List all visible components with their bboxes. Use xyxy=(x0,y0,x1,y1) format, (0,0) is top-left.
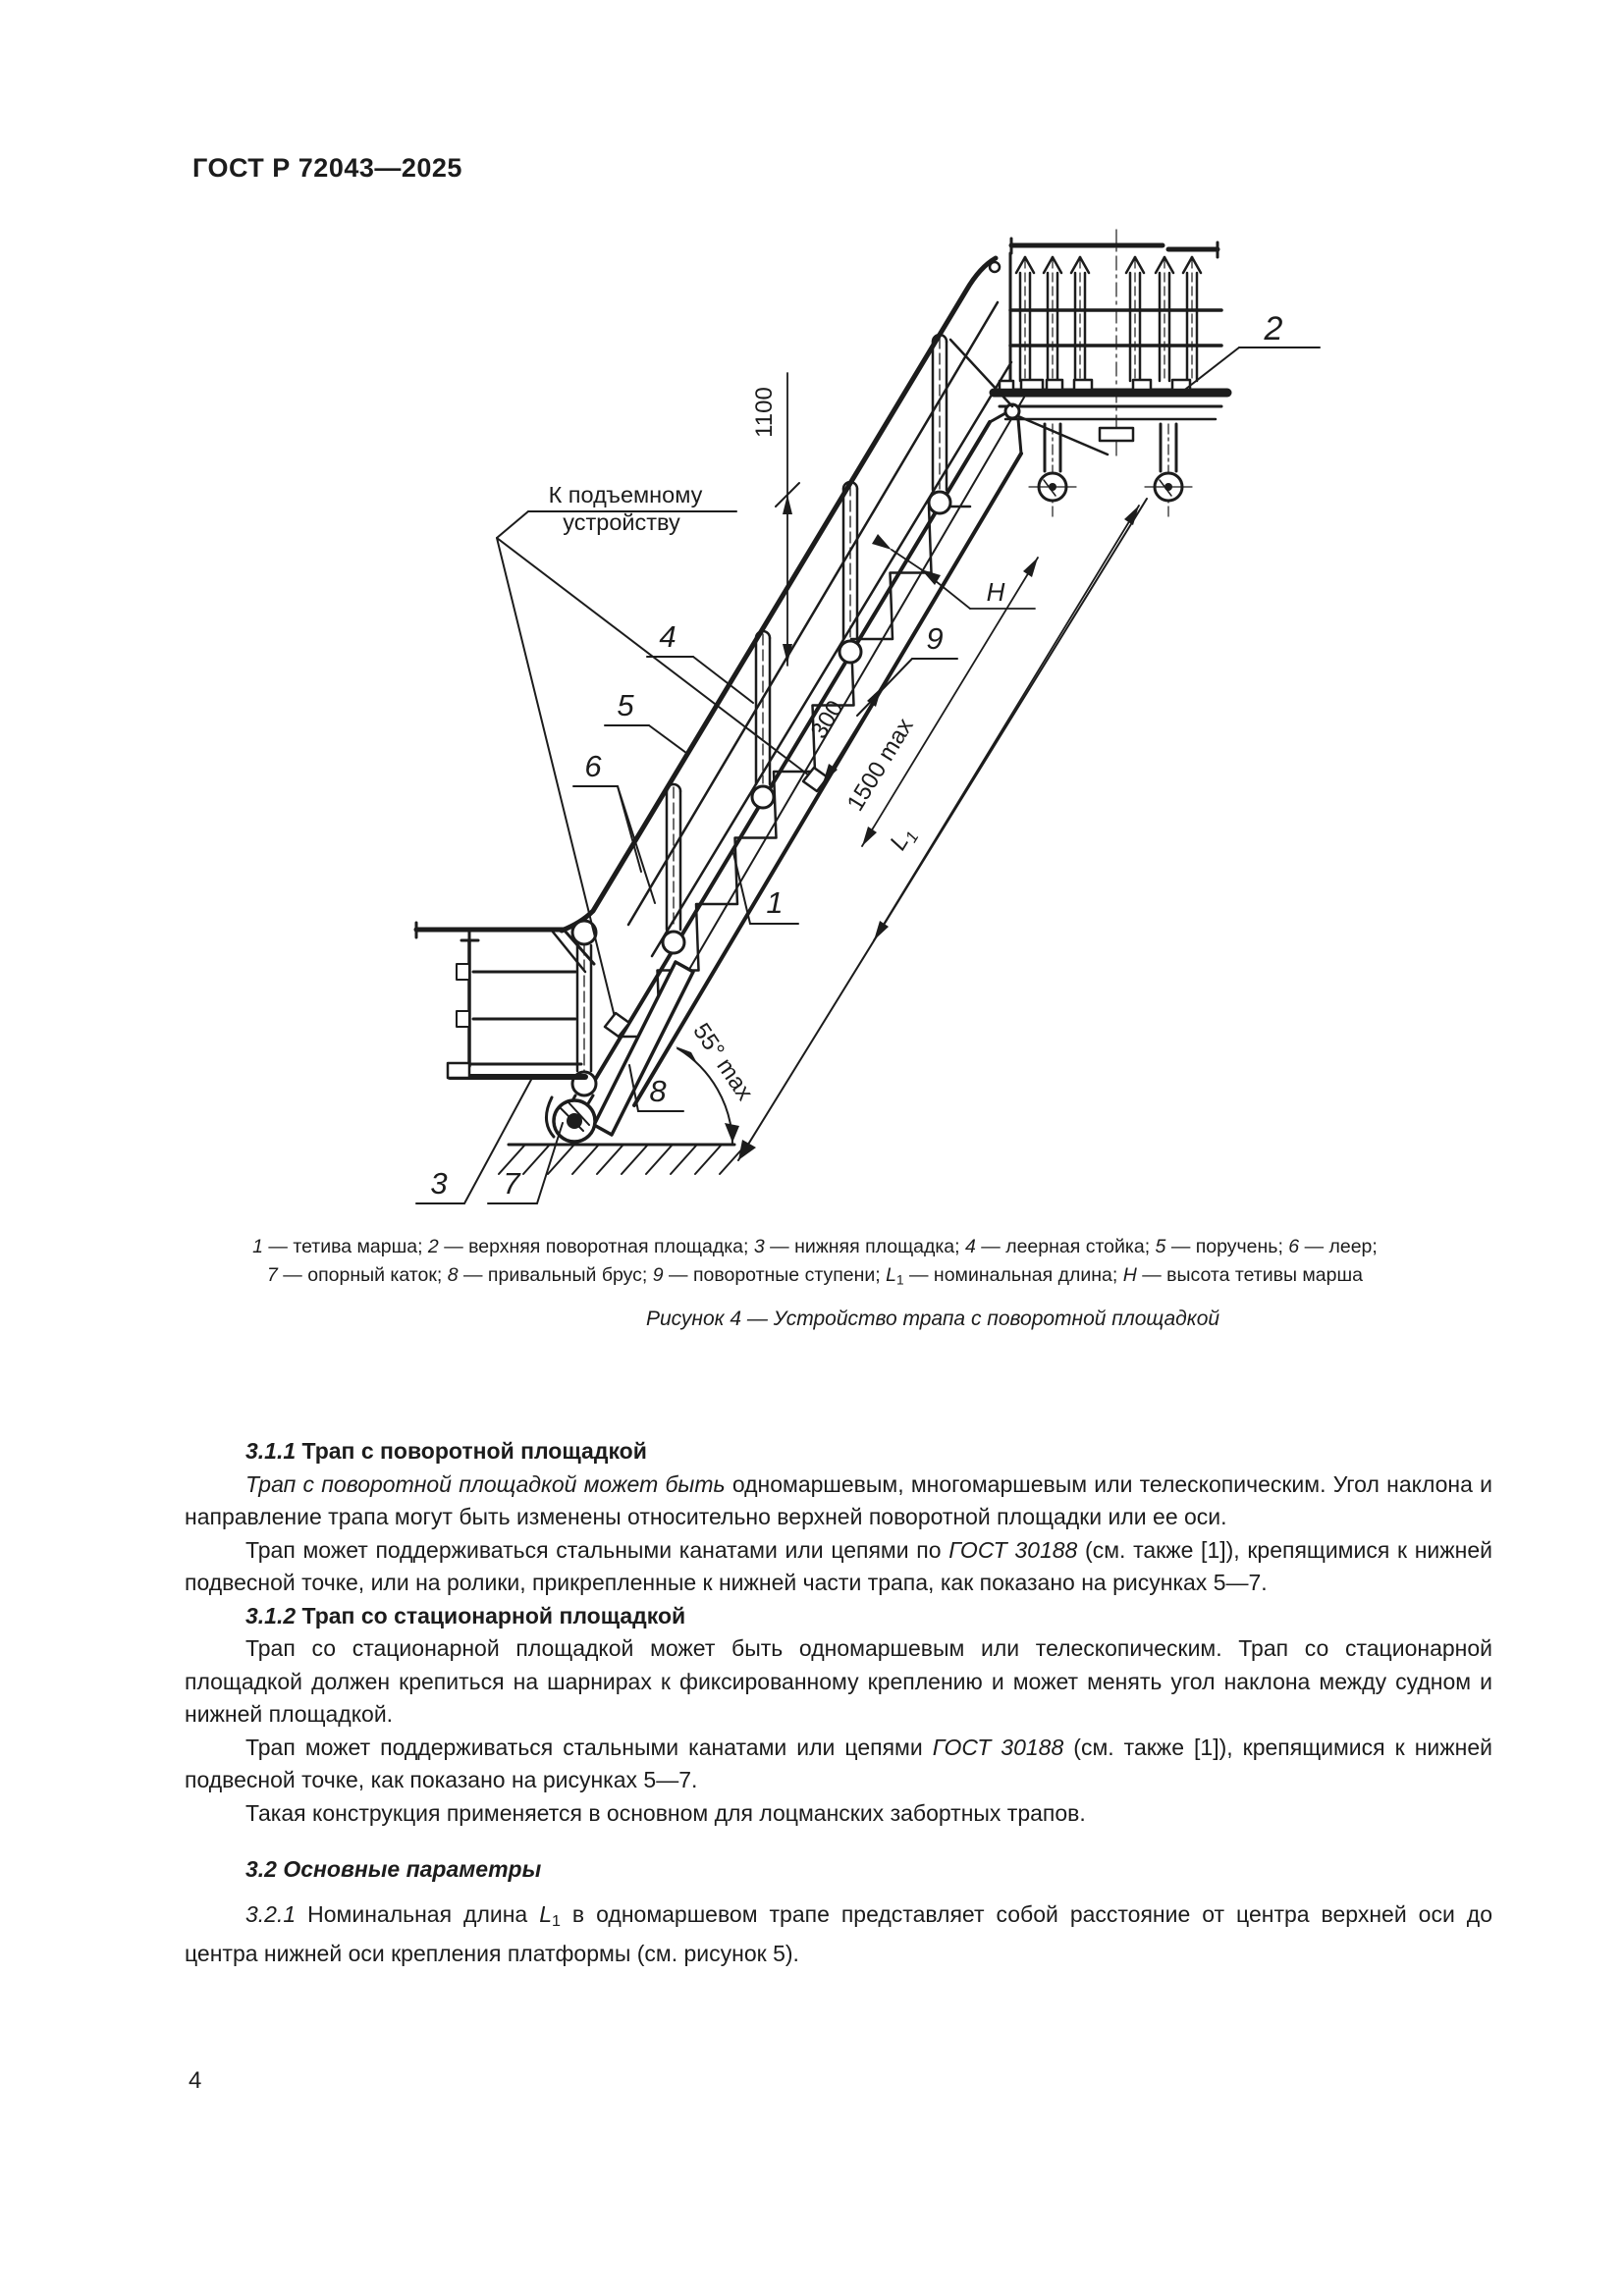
upper-turning-platform xyxy=(950,230,1227,516)
lift-device-label-line2: устройству xyxy=(563,509,680,535)
dim-l1-label: L1 xyxy=(885,822,922,857)
paragraph-3-1-2-a: Трап со стационарной площадкой может быт… xyxy=(185,1632,1492,1732)
callout-1: 1 xyxy=(766,885,783,920)
callout-9: 9 xyxy=(926,621,943,656)
cable-lug-lower xyxy=(605,1013,629,1037)
paragraph-3-1-1-a: Трап с поворотной площадкой может быть о… xyxy=(185,1468,1492,1534)
lift-device-label-line1: К подъемному xyxy=(549,482,703,507)
dim-angle-label: 55° max xyxy=(687,1019,758,1105)
heading-3-1-2: 3.1.2 Трап со стационарной площадкой xyxy=(185,1600,1492,1633)
figure-caption-line1: 1 — тетива марша; 2 — верхняя поворотная… xyxy=(147,1233,1483,1261)
dim-1500-max xyxy=(862,558,1038,846)
heading-3-1-1: 3.1.1 Трап с поворотной площадкой xyxy=(185,1435,1492,1468)
document-page: ГОСТ Р 72043—2025 xyxy=(0,0,1624,2296)
balusters xyxy=(1016,257,1201,381)
callout-7: 7 xyxy=(503,1166,521,1201)
figure-title: Рисунок 4 — Устройство трапа с поворотно… xyxy=(373,1308,1492,1331)
standard-code: ГОСТ Р 72043—2025 xyxy=(192,153,462,184)
paragraph-3-1-2-c: Такая конструкция применяется в основном… xyxy=(185,1797,1492,1831)
steps xyxy=(619,507,970,1037)
figure-caption: 1 — тетива марша; 2 — верхняя поворотная… xyxy=(147,1233,1483,1294)
callout-3: 3 xyxy=(430,1166,447,1201)
heading-3-2: 3.2 Основные параметры xyxy=(185,1853,1492,1887)
callout-8: 8 xyxy=(649,1074,667,1108)
ground-line xyxy=(499,1145,745,1174)
dim-300-label: 300 xyxy=(806,696,849,743)
dim-1100-label: 1100 xyxy=(751,387,778,438)
callout-6: 6 xyxy=(584,749,602,783)
callout-6-leader xyxy=(573,786,655,903)
hanger-right xyxy=(1145,424,1192,516)
dim-l1 xyxy=(874,506,1139,940)
callout-2: 2 xyxy=(1264,310,1283,347)
callout-5-leader xyxy=(605,725,686,753)
paragraph-3-2-1: 3.2.1 Номинальная длина L1 в одномаршево… xyxy=(185,1898,1492,1971)
dim-1100 xyxy=(776,373,799,666)
dim-h-label: H xyxy=(987,577,1005,607)
body-text: 3.1.1 Трап с поворотной площадкой Трап с… xyxy=(185,1435,1492,1971)
callout-5: 5 xyxy=(617,688,634,722)
gangway-technical-drawing: К подъемному устройству 1100 300 1500 ma… xyxy=(393,220,1340,1227)
handrail-hook xyxy=(990,262,1000,272)
support-roller xyxy=(546,1097,595,1142)
paragraph-3-1-1-b: Трап может поддерживаться стальными кана… xyxy=(185,1534,1492,1600)
paragraph-3-1-2-b: Трап может поддерживаться стальными кана… xyxy=(185,1732,1492,1797)
figure-4: К подъемному устройству 1100 300 1500 ma… xyxy=(393,220,1340,1232)
lower-platform xyxy=(416,923,594,1078)
page-number: 4 xyxy=(189,2067,201,2095)
handrail xyxy=(562,258,996,931)
dim-1500-label: 1500 max xyxy=(842,714,919,816)
callout-4: 4 xyxy=(659,619,676,654)
figure-caption-line2: 7 — опорный каток; 8 — привальный брус; … xyxy=(147,1261,1483,1294)
